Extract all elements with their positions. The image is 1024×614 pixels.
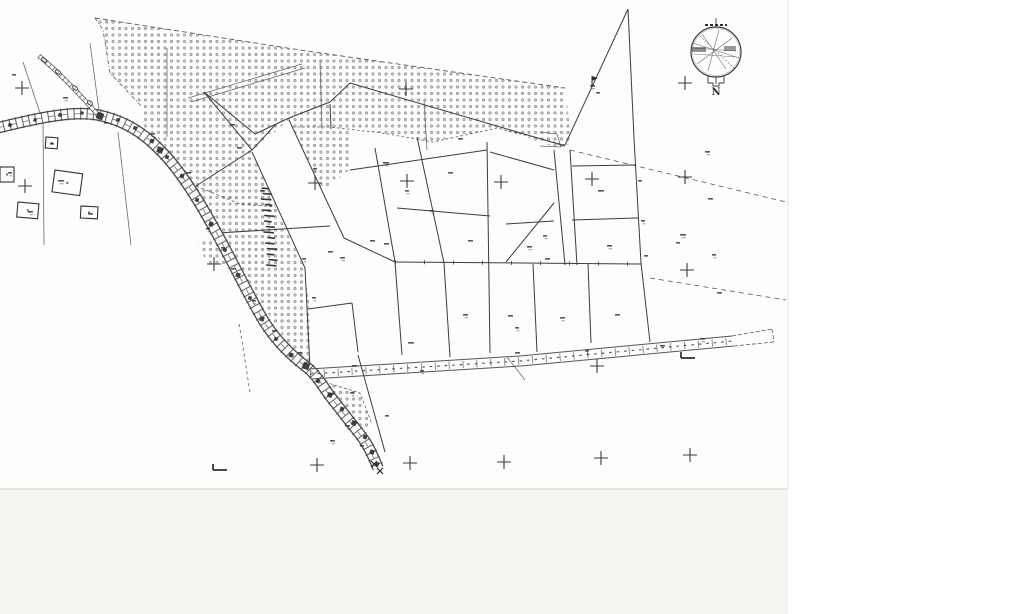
label-smudge	[596, 92, 600, 94]
label-smudge	[676, 242, 680, 244]
label-smudge-secondary	[545, 238, 548, 239]
label-smudge-secondary	[517, 330, 520, 331]
label-smudge-secondary	[529, 249, 533, 250]
tree-row-rung	[267, 254, 275, 255]
label-smudge	[58, 180, 64, 182]
label-smudge	[237, 147, 242, 149]
label-smudge-secondary	[342, 260, 346, 261]
label-smudge-secondary	[315, 171, 318, 172]
label-smudge-secondary	[432, 213, 435, 214]
label-smudge	[515, 352, 520, 354]
tree-row-rung	[265, 243, 274, 244]
label-smudge	[712, 254, 716, 256]
station-dot	[44, 60, 45, 61]
label-smudge-secondary	[587, 353, 590, 354]
label-smudge	[12, 74, 16, 76]
label-smudge	[8, 172, 12, 174]
label-smudge-secondary	[702, 341, 706, 342]
label-smudge	[615, 314, 620, 316]
label-smudge	[272, 330, 277, 332]
tree-row-rung	[267, 238, 275, 239]
label-smudge	[88, 213, 93, 215]
label-smudge	[405, 190, 409, 192]
tree-row-rung	[262, 210, 271, 211]
label-smudge-secondary	[262, 193, 266, 194]
label-smudge	[340, 257, 345, 259]
label-smudge	[543, 235, 547, 237]
label-smudge	[700, 338, 705, 340]
station-dot	[90, 103, 91, 104]
label-smudge	[360, 445, 364, 447]
label-smudge	[330, 393, 335, 395]
label-smudge	[598, 190, 604, 192]
label-smudge-secondary	[352, 395, 355, 396]
scanned-cadastral-map: N	[0, 0, 1024, 614]
label-smudge	[468, 240, 473, 242]
compass-dark-smudge-left	[692, 47, 706, 52]
station-dot	[58, 72, 59, 73]
tree-row-rung	[266, 227, 275, 228]
label-smudge	[206, 228, 210, 230]
label-smudge	[430, 210, 434, 212]
label-smudge	[508, 315, 513, 317]
label-smudge	[458, 138, 463, 140]
label-smudge	[408, 342, 414, 344]
tree-row-rung	[261, 188, 269, 189]
label-smudge-secondary	[30, 214, 34, 215]
label-smudge	[463, 314, 468, 316]
label-smudge	[420, 370, 424, 372]
cadastral-map-svg: N	[0, 0, 1024, 614]
label-smudge	[680, 234, 686, 236]
label-smudge	[150, 133, 155, 135]
label-smudge	[560, 317, 565, 319]
label-smudge-secondary	[422, 373, 425, 374]
label-smudge-secondary	[332, 443, 336, 444]
tree-row-rung	[268, 260, 277, 261]
label-smudge	[644, 255, 648, 257]
label-smudge	[252, 300, 256, 302]
label-smudge	[330, 440, 335, 442]
label-smudge-secondary	[385, 165, 389, 166]
building-mark	[6, 174, 8, 176]
label-smudge-secondary	[254, 303, 257, 304]
label-smudge-secondary	[609, 248, 613, 249]
label-smudge	[345, 425, 350, 427]
label-smudge	[607, 245, 612, 247]
label-smudge	[352, 365, 357, 367]
tree-row-rung	[265, 205, 273, 206]
label-smudge	[50, 143, 54, 145]
label-smudge	[585, 350, 589, 352]
label-smudge-secondary	[304, 261, 307, 262]
tree-row-rung	[261, 199, 272, 200]
label-smudge	[63, 97, 68, 99]
label-smudge	[638, 180, 642, 182]
label-smudge-secondary	[714, 257, 717, 258]
label-smudge-secondary	[592, 88, 596, 89]
label-smudge-secondary	[407, 193, 410, 194]
label-smudge	[708, 198, 713, 200]
label-smudge	[545, 258, 550, 260]
label-smudge	[28, 211, 33, 213]
label-smudge-secondary	[314, 300, 317, 301]
label-smudge	[298, 352, 302, 354]
label-smudge	[590, 85, 595, 87]
label-smudge-secondary	[643, 223, 646, 224]
north-label: N	[711, 87, 720, 98]
station-dot	[75, 88, 76, 89]
label-smudge	[231, 268, 236, 270]
scan-background-right	[788, 0, 1024, 614]
tree-row-rung	[266, 265, 277, 266]
label-smudge	[515, 327, 519, 329]
label-smudge	[705, 151, 710, 153]
label-smudge	[312, 297, 316, 299]
label-smudge-secondary	[707, 154, 711, 155]
compass-dark-smudge-right	[724, 46, 736, 51]
label-smudge-secondary	[300, 355, 303, 356]
label-smudge	[186, 172, 191, 174]
label-smudge	[221, 247, 225, 249]
building-mark	[66, 182, 68, 184]
label-smudge	[313, 168, 317, 170]
tree-row-rung	[264, 221, 272, 222]
label-smudge-secondary	[208, 231, 211, 232]
label-smudge	[350, 392, 354, 394]
label-smudge-secondary	[152, 136, 156, 137]
label-smudge	[104, 122, 108, 124]
tree-row-rung	[263, 232, 274, 233]
tree-row-rung	[264, 216, 275, 217]
label-smudge	[641, 220, 645, 222]
label-smudge-secondary	[10, 175, 13, 176]
label-smudge	[384, 243, 389, 245]
label-smudge	[527, 246, 532, 248]
label-smudge	[383, 162, 389, 164]
label-smudge-secondary	[347, 428, 351, 429]
label-smudge	[230, 124, 235, 126]
label-smudge	[660, 345, 665, 347]
label-smudge-secondary	[465, 317, 469, 318]
label-smudge	[385, 415, 389, 417]
label-smudge-secondary	[60, 183, 64, 184]
label-smudge	[260, 190, 265, 192]
label-smudge-secondary	[65, 100, 69, 101]
label-smudge	[302, 258, 306, 260]
label-smudge-secondary	[682, 237, 686, 238]
label-smudge	[370, 240, 375, 242]
label-smudge-secondary	[562, 320, 566, 321]
label-smudge	[328, 251, 333, 253]
tree-row-rung	[267, 249, 278, 250]
label-smudge	[448, 172, 453, 174]
label-smudge	[717, 292, 722, 294]
